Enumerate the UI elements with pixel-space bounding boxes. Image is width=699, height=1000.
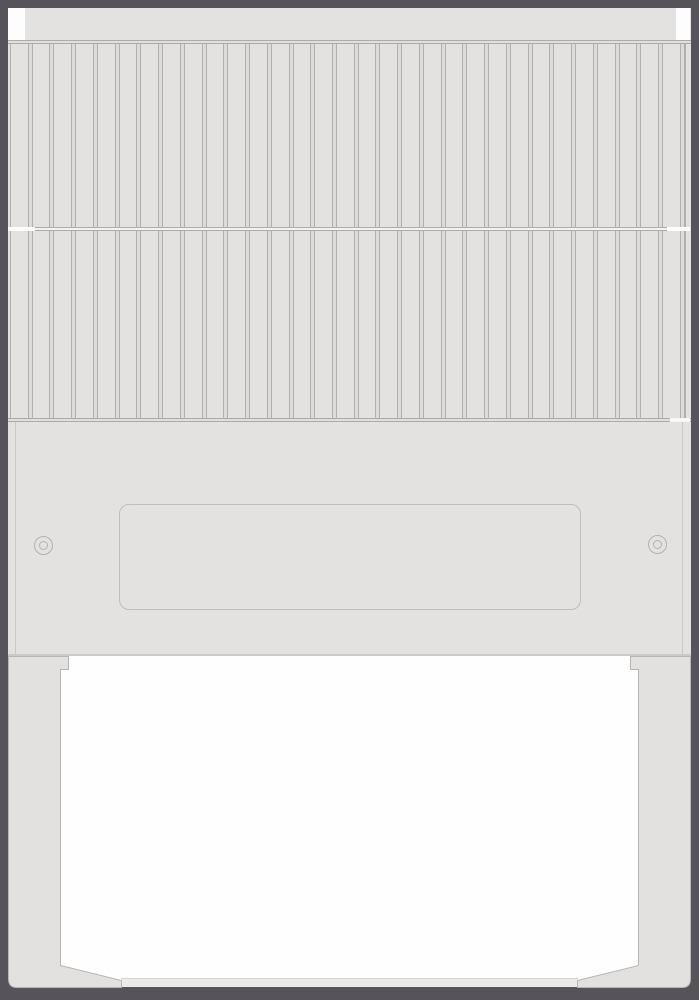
fin-slat (120, 231, 142, 418)
fin-slat (98, 44, 120, 227)
fin-slat (489, 44, 511, 227)
fin-slat (185, 44, 207, 227)
rail-highlight-right (667, 227, 690, 231)
fin-slat (163, 231, 185, 418)
fin-slat (185, 231, 207, 418)
fin-slat (424, 231, 446, 418)
fin-slat (337, 231, 359, 418)
fin-slat (250, 44, 272, 227)
fin-slat (533, 44, 555, 227)
fin-slat (98, 231, 120, 418)
fin-slat (141, 44, 163, 227)
fin-slat (294, 231, 316, 418)
leg-left (8, 656, 122, 988)
screw-left (34, 536, 53, 555)
fin-slat (207, 44, 229, 227)
fin-slat (554, 44, 576, 227)
fin-slat (163, 44, 185, 227)
fin-slat (511, 44, 533, 227)
top-panel-end-cap-right (676, 8, 690, 40)
fin-slat (511, 231, 533, 418)
base-rail (121, 978, 578, 987)
unit-upper-body (8, 8, 691, 656)
fin-slat (402, 44, 424, 227)
fin-slat (380, 231, 402, 418)
panel-seam-lower (8, 418, 691, 422)
top-panel (8, 8, 691, 40)
fin-slat (272, 44, 294, 227)
panel-fold-line-left (15, 422, 16, 654)
fin-slat (424, 44, 446, 227)
fin-slat (641, 44, 663, 227)
leg-right (577, 656, 691, 988)
fin-slat (54, 44, 76, 227)
fin-slat (76, 44, 98, 227)
fin-slat (380, 44, 402, 227)
fin-slat (33, 231, 55, 418)
base-compartment (8, 656, 691, 988)
frame-background: { "diagram": { "type": "technical-illust… (0, 0, 699, 1000)
fin-slat (250, 231, 272, 418)
fin-slat (76, 231, 98, 418)
fin-slat (120, 44, 142, 227)
fin-slat (315, 44, 337, 227)
fin-slat (207, 231, 229, 418)
fin-slat (663, 231, 685, 418)
screw-right (648, 535, 667, 554)
fin-slat (54, 231, 76, 418)
fin-row-upper (11, 44, 685, 227)
fin-slat (294, 44, 316, 227)
fin-slat (228, 44, 250, 227)
fin-slat (489, 231, 511, 418)
fin-slat (402, 231, 424, 418)
fin-slat (598, 231, 620, 418)
fin-slat (467, 231, 489, 418)
screw-head-icon (653, 540, 662, 549)
fin-slat (576, 44, 598, 227)
fin-slat (620, 231, 642, 418)
fin-slat (598, 44, 620, 227)
fin-slat (272, 231, 294, 418)
fin-slat (467, 44, 489, 227)
outdoor-unit-illustration (8, 8, 691, 988)
compartment-opening (60, 656, 639, 987)
rail-highlight-left (8, 227, 35, 231)
seam-highlight-right (670, 418, 690, 422)
fin-slat (228, 231, 250, 418)
fin-slat (315, 231, 337, 418)
fin-slat (359, 231, 381, 418)
fin-slat (33, 44, 55, 227)
fin-grille (10, 44, 686, 418)
panel-fold-line-right (682, 422, 683, 654)
fin-slat (663, 44, 685, 227)
fin-slat (11, 231, 33, 418)
screw-head-icon (39, 541, 48, 550)
fin-slat (359, 44, 381, 227)
fin-slat (337, 44, 359, 227)
fin-slat (141, 231, 163, 418)
fin-slat (641, 231, 663, 418)
fin-slat (446, 231, 468, 418)
fin-slat (533, 231, 555, 418)
fin-slat (11, 44, 33, 227)
fin-slat (620, 44, 642, 227)
fin-slat (576, 231, 598, 418)
fin-row-lower (11, 231, 685, 418)
nameplate-recess (119, 504, 581, 610)
fin-slat (554, 231, 576, 418)
fin-slat (446, 44, 468, 227)
top-panel-end-cap-left (8, 8, 25, 40)
